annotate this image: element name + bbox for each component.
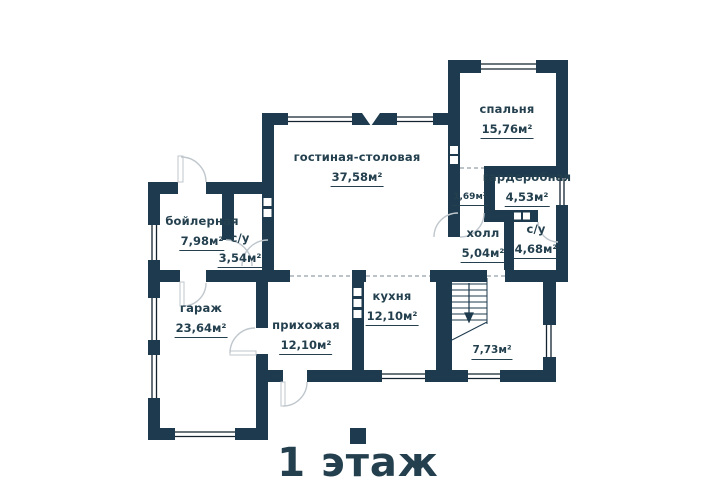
floor-plan: гостиная-столовая 37,58м² спальня 15,76м… (0, 0, 717, 502)
room-label-bathroom-left: с/у 3,54м² (218, 231, 263, 268)
room-label-wardrobe: гардеробная 4,53м² (483, 170, 572, 207)
room-label-bathroom-top: с/у 4,68м² (514, 222, 559, 259)
floor-title: 1 этаж (277, 440, 438, 486)
room-label-hall: холл 5,04м² (461, 226, 506, 263)
stairs-icon (452, 278, 487, 340)
room-label-stairs-room: 7,73м² (471, 337, 512, 360)
room-label-corridor: 1,69м² (452, 183, 488, 206)
room-label-garage: гараж 23,64м² (175, 301, 228, 338)
room-label-entry-hall: прихожая 12,10м² (272, 318, 340, 355)
room-label-bedroom: спальня 15,76м² (480, 102, 535, 139)
room-label-living-dining: гостиная-столовая 37,58м² (294, 150, 421, 187)
floor-plan-drawing (0, 0, 717, 502)
room-label-kitchen: кухня 12,10м² (366, 289, 419, 326)
